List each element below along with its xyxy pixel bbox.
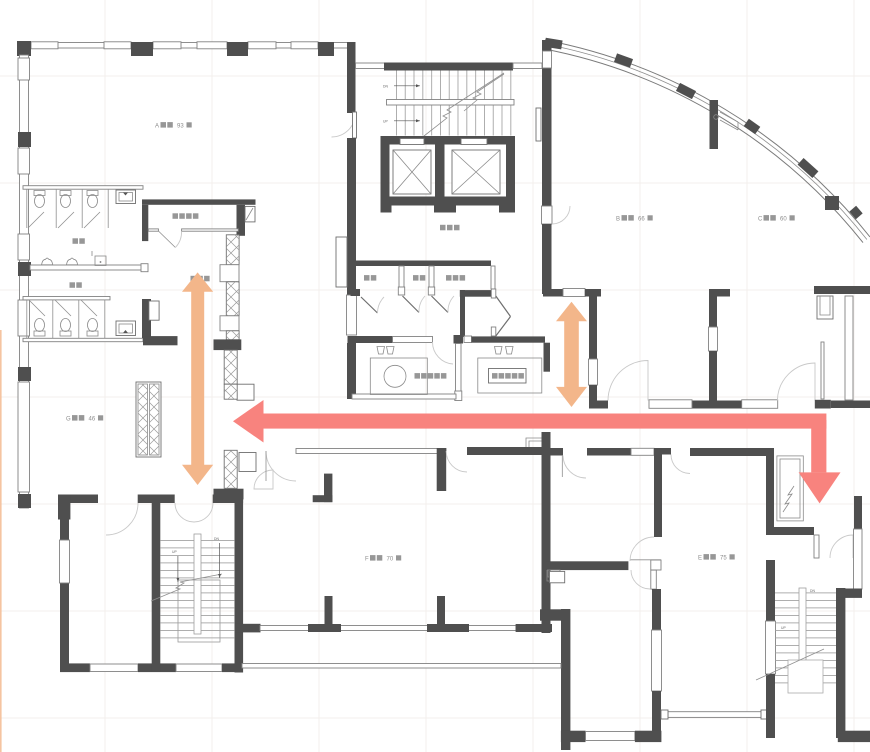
svg-text:E: E <box>698 556 702 562</box>
svg-text:75: 75 <box>720 556 727 562</box>
svg-text:F: F <box>365 557 369 563</box>
svg-text:DN: DN <box>383 85 388 89</box>
svg-text:60: 60 <box>780 217 787 223</box>
svg-text:93: 93 <box>177 124 184 130</box>
svg-text:G: G <box>66 417 71 423</box>
svg-text:46: 46 <box>89 417 96 423</box>
svg-text:C: C <box>758 217 763 223</box>
svg-text:B: B <box>616 217 620 223</box>
svg-text:A: A <box>155 124 159 130</box>
svg-text:UP: UP <box>383 120 388 124</box>
svg-text:70: 70 <box>387 557 394 563</box>
svg-text:DN: DN <box>214 537 219 541</box>
svg-text:UP: UP <box>172 550 177 554</box>
svg-text:DN: DN <box>810 589 815 593</box>
svg-text:UP: UP <box>781 626 786 630</box>
svg-text:66: 66 <box>638 217 645 223</box>
